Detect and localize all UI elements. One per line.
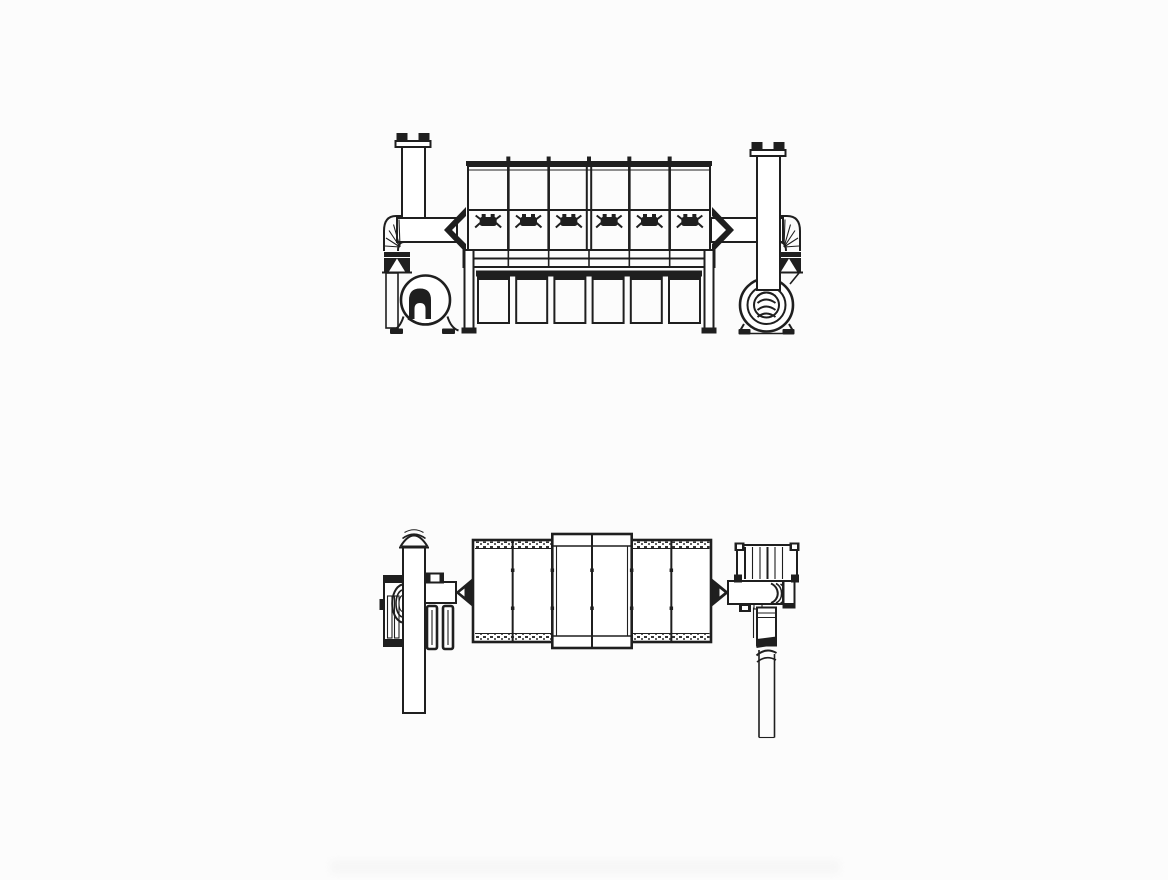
leg-foot bbox=[462, 328, 477, 334]
fan-tab bbox=[380, 599, 385, 610]
fan-left bbox=[382, 252, 459, 334]
bolt-dot bbox=[511, 569, 514, 573]
flex-connector-left bbox=[384, 252, 410, 257]
hopper-rim bbox=[593, 277, 624, 280]
roof-tick bbox=[506, 157, 510, 162]
unit-body bbox=[468, 166, 710, 250]
leg-foot bbox=[702, 328, 717, 334]
hopper bbox=[554, 277, 585, 323]
hopper bbox=[593, 277, 624, 323]
pulse-valve bbox=[516, 214, 542, 228]
fan-inlet-duct-left bbox=[386, 273, 398, 328]
drawing-canvas bbox=[0, 0, 1168, 880]
plan-pipe-left bbox=[399, 530, 429, 713]
hopper bbox=[669, 277, 700, 323]
pulse-valve bbox=[637, 214, 663, 228]
plan-stack-pipe-left bbox=[403, 547, 425, 714]
unit-leg-left bbox=[465, 250, 474, 329]
bolt-dot bbox=[551, 569, 555, 573]
stack-cap-left bbox=[397, 133, 408, 141]
baghouse-unit bbox=[462, 157, 717, 334]
plan-support-brackets bbox=[427, 606, 453, 649]
bolt-dot bbox=[511, 607, 514, 611]
pulse-valve bbox=[596, 214, 622, 228]
roof-tick bbox=[627, 157, 631, 162]
hopper-row bbox=[478, 277, 700, 323]
bolt-dot bbox=[630, 569, 634, 573]
stack-cap-left bbox=[419, 133, 430, 141]
pulse-valve bbox=[475, 214, 501, 228]
dust-collector-drawing bbox=[0, 0, 1168, 880]
bolt-dot bbox=[551, 607, 555, 611]
plan-view bbox=[380, 530, 800, 738]
plan-duct-left-run bbox=[425, 582, 456, 603]
plan-baghouse-unit bbox=[473, 534, 711, 648]
fan-foot bbox=[390, 329, 403, 335]
roof-tick bbox=[547, 157, 551, 162]
bolt-dot bbox=[630, 607, 634, 611]
stack-cap-right bbox=[774, 142, 785, 150]
hopper bbox=[478, 277, 509, 323]
divider-double bbox=[587, 166, 591, 250]
plan-cone-left bbox=[456, 577, 475, 608]
bolt-dot bbox=[670, 607, 674, 611]
unit-leg-right bbox=[705, 250, 714, 329]
hopper bbox=[516, 277, 547, 323]
plan-fan-left bbox=[380, 576, 404, 646]
exhaust-stack-left bbox=[396, 133, 431, 218]
pipe-lower-run bbox=[759, 650, 775, 738]
hopper-header-beam bbox=[476, 271, 702, 277]
stack-cap-right bbox=[752, 142, 763, 150]
plan-duct-left bbox=[425, 574, 474, 609]
hopper-rim bbox=[554, 277, 585, 280]
hopper-rim bbox=[478, 277, 509, 280]
bolt-dot bbox=[670, 569, 674, 573]
stack-pipe-left bbox=[402, 147, 425, 218]
plan-pipe-right bbox=[754, 608, 777, 738]
bolt-dot bbox=[590, 569, 594, 573]
roof-tick bbox=[668, 157, 672, 162]
paper-smudge bbox=[330, 860, 840, 874]
bolt-dot bbox=[590, 607, 594, 611]
turning-vanes-right bbox=[784, 220, 799, 248]
pulse-valve bbox=[677, 214, 703, 228]
stack-pipe-right bbox=[757, 156, 780, 290]
pulse-valve bbox=[556, 214, 582, 228]
roof-tick bbox=[587, 157, 591, 162]
hopper-rim bbox=[631, 277, 662, 280]
elevation-view bbox=[382, 133, 803, 335]
hopper-rim bbox=[516, 277, 547, 280]
hopper bbox=[631, 277, 662, 323]
hopper-rim bbox=[669, 277, 700, 280]
fan-foot bbox=[442, 329, 455, 335]
